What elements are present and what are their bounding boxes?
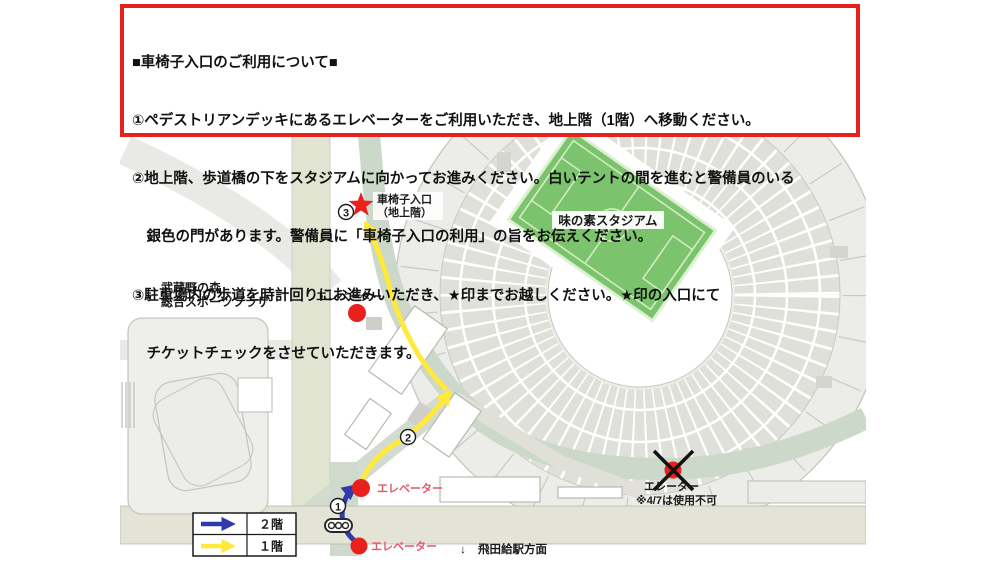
station-direction-label: 飛田給駅方面 — [477, 542, 547, 556]
elevator-bridge-marker — [352, 479, 370, 497]
legend: ２階 １階 — [193, 513, 296, 556]
notice-line-5: チケットチェックをさせていただきます。 — [132, 345, 848, 364]
step-2-badge: 2 — [401, 430, 416, 445]
station-direction-arrow-icon: ↓ — [460, 542, 466, 556]
svg-text:1: 1 — [335, 502, 341, 514]
elevator-closed-note: ※4/7は使用不可 — [636, 493, 717, 507]
notice-title: ■車椅子入口のご利用について■ — [132, 54, 848, 73]
elevator-bridge-label: エレベーター — [377, 482, 443, 495]
legend-1f-label: １階 — [259, 539, 283, 554]
legend-2f-label: ２階 — [259, 517, 283, 532]
notice-line-1: ①ペデストリアンデッキにあるエレベーターをご利用いただき、地上階（1階）へ移動く… — [132, 112, 848, 131]
notice-line-2: ②地上階、歩道橋の下をスタジアムに向かってお進みください。白いテントの間を進むと… — [132, 170, 848, 189]
step-1-badge: 1 — [331, 499, 346, 514]
crossing-signal-icon — [325, 519, 352, 532]
wheelchair-access-guide: 1 2 3 味の素スタジアム 武蔵野の森 総合スポーツプラザ 車椅子入口 （地上… — [0, 0, 1000, 563]
elevator-station-label: エレベーター — [371, 540, 437, 553]
notice-box: ■車椅子入口のご利用について■ ①ペデストリアンデッキにあるエレベーターをご利用… — [120, 4, 860, 137]
elevator-closed-label: エレーター — [644, 480, 699, 493]
elevator-station-marker — [351, 538, 368, 555]
notice-line-4: ③駐車場内の歩道を時計回りにお進みいただき、★印までお越しください。★印の入口に… — [132, 287, 848, 306]
notice-line-3: 銀色の門があります。警備員に「車椅子入口の利用」の旨をお伝えください。 — [132, 228, 848, 247]
svg-text:2: 2 — [405, 433, 411, 445]
